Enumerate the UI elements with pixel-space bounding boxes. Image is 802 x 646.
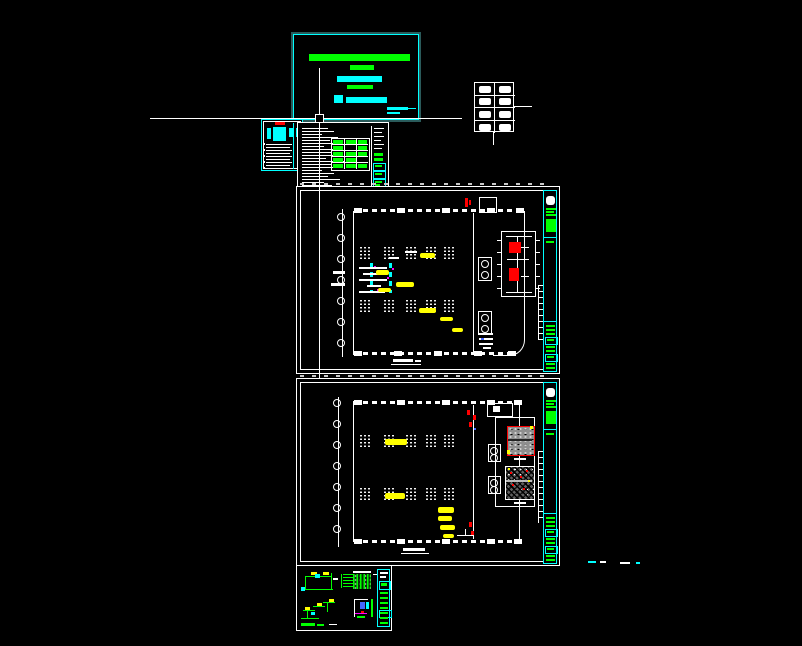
- tick-row: [300, 183, 544, 185]
- cad-shape: [620, 562, 630, 564]
- tick-row: [300, 375, 552, 377]
- cad-shape: [600, 561, 606, 563]
- crosshair-pickbox[interactable]: [315, 114, 324, 123]
- extension-line: [493, 132, 494, 145]
- cad-shape: [588, 561, 596, 563]
- crosshair-horizontal-line[interactable]: [150, 118, 462, 119]
- misc-marks-layer: [0, 0, 802, 646]
- extension-line: [514, 106, 532, 107]
- cad-shape: [636, 562, 640, 564]
- cad-model-space[interactable]: [0, 0, 802, 646]
